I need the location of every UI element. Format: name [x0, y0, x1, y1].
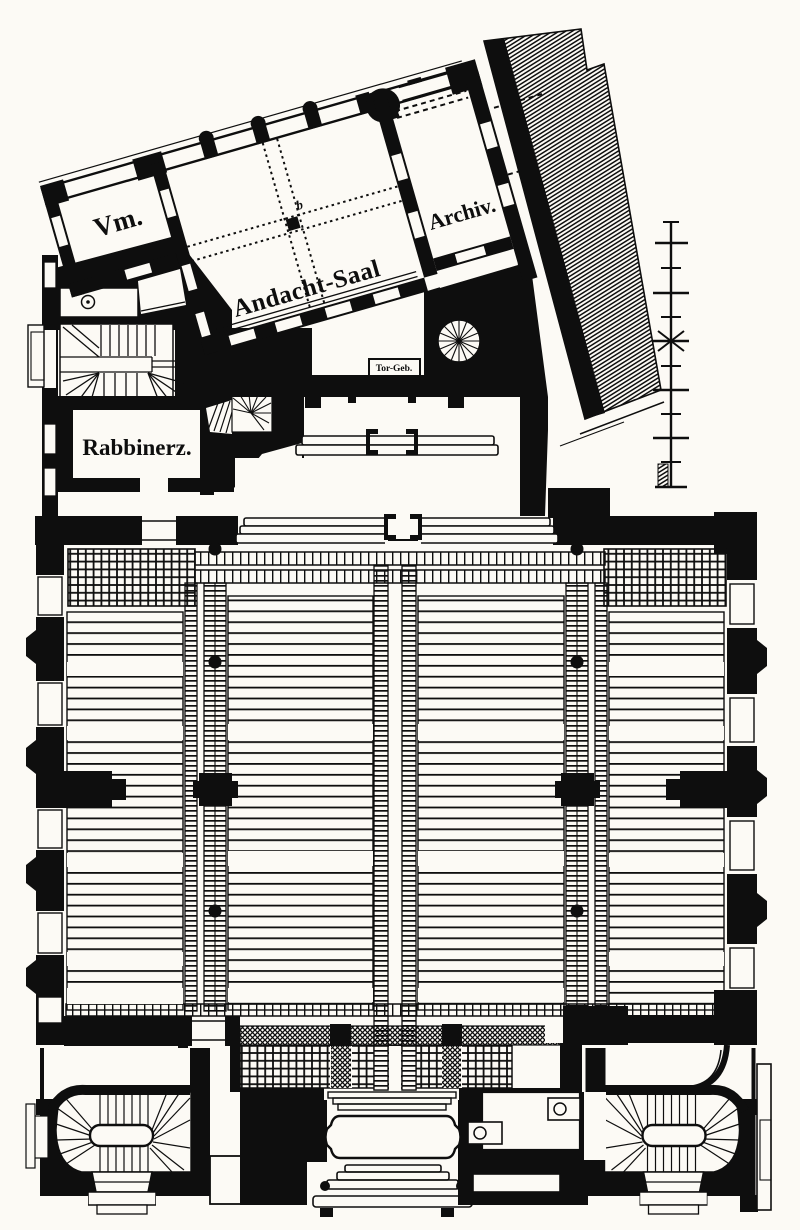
- svg-text:Rabbinerz.: Rabbinerz.: [82, 435, 191, 460]
- svg-text:Tor-Geb.: Tor-Geb.: [376, 364, 413, 374]
